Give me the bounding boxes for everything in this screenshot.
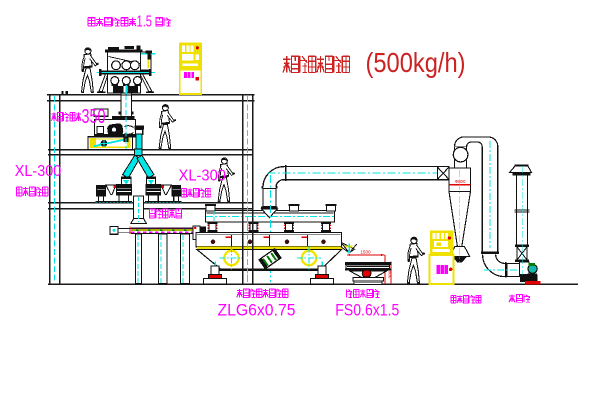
svg-text:XL-300: XL-300 [179,167,227,184]
svg-text:FS0.6x1.5: FS0.6x1.5 [335,300,399,319]
svg-text:XL-300: XL-300 [15,163,62,180]
svg-text:Φ800: Φ800 [455,179,466,184]
svg-text:ZLG6x0.75: ZLG6x0.75 [218,300,296,319]
svg-text:1500: 1500 [360,249,371,254]
svg-text:1.5: 1.5 [137,14,153,31]
svg-text:300: 300 [388,270,393,278]
svg-text:350: 350 [82,106,106,128]
svg-text:(500kg/h): (500kg/h) [366,47,466,78]
